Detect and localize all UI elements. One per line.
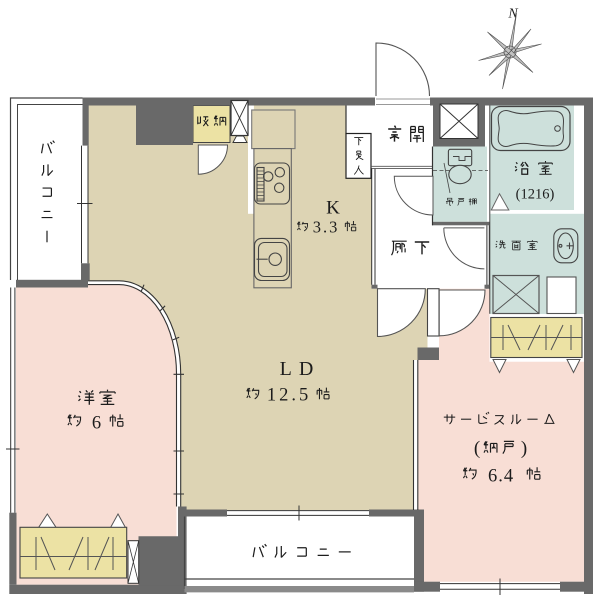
- svg-text:(1216): (1216): [516, 187, 555, 203]
- svg-text:K: K: [326, 198, 340, 219]
- svg-text:N: N: [507, 7, 518, 22]
- svg-text:6.4: 6.4: [488, 467, 514, 487]
- svg-text:(: (: [474, 438, 480, 459]
- svg-text:): ): [521, 438, 527, 459]
- svg-text:6: 6: [92, 414, 101, 434]
- svg-text:12.5: 12.5: [267, 386, 311, 406]
- svg-text:LD: LD: [280, 358, 321, 380]
- svg-text:3.3: 3.3: [313, 218, 340, 237]
